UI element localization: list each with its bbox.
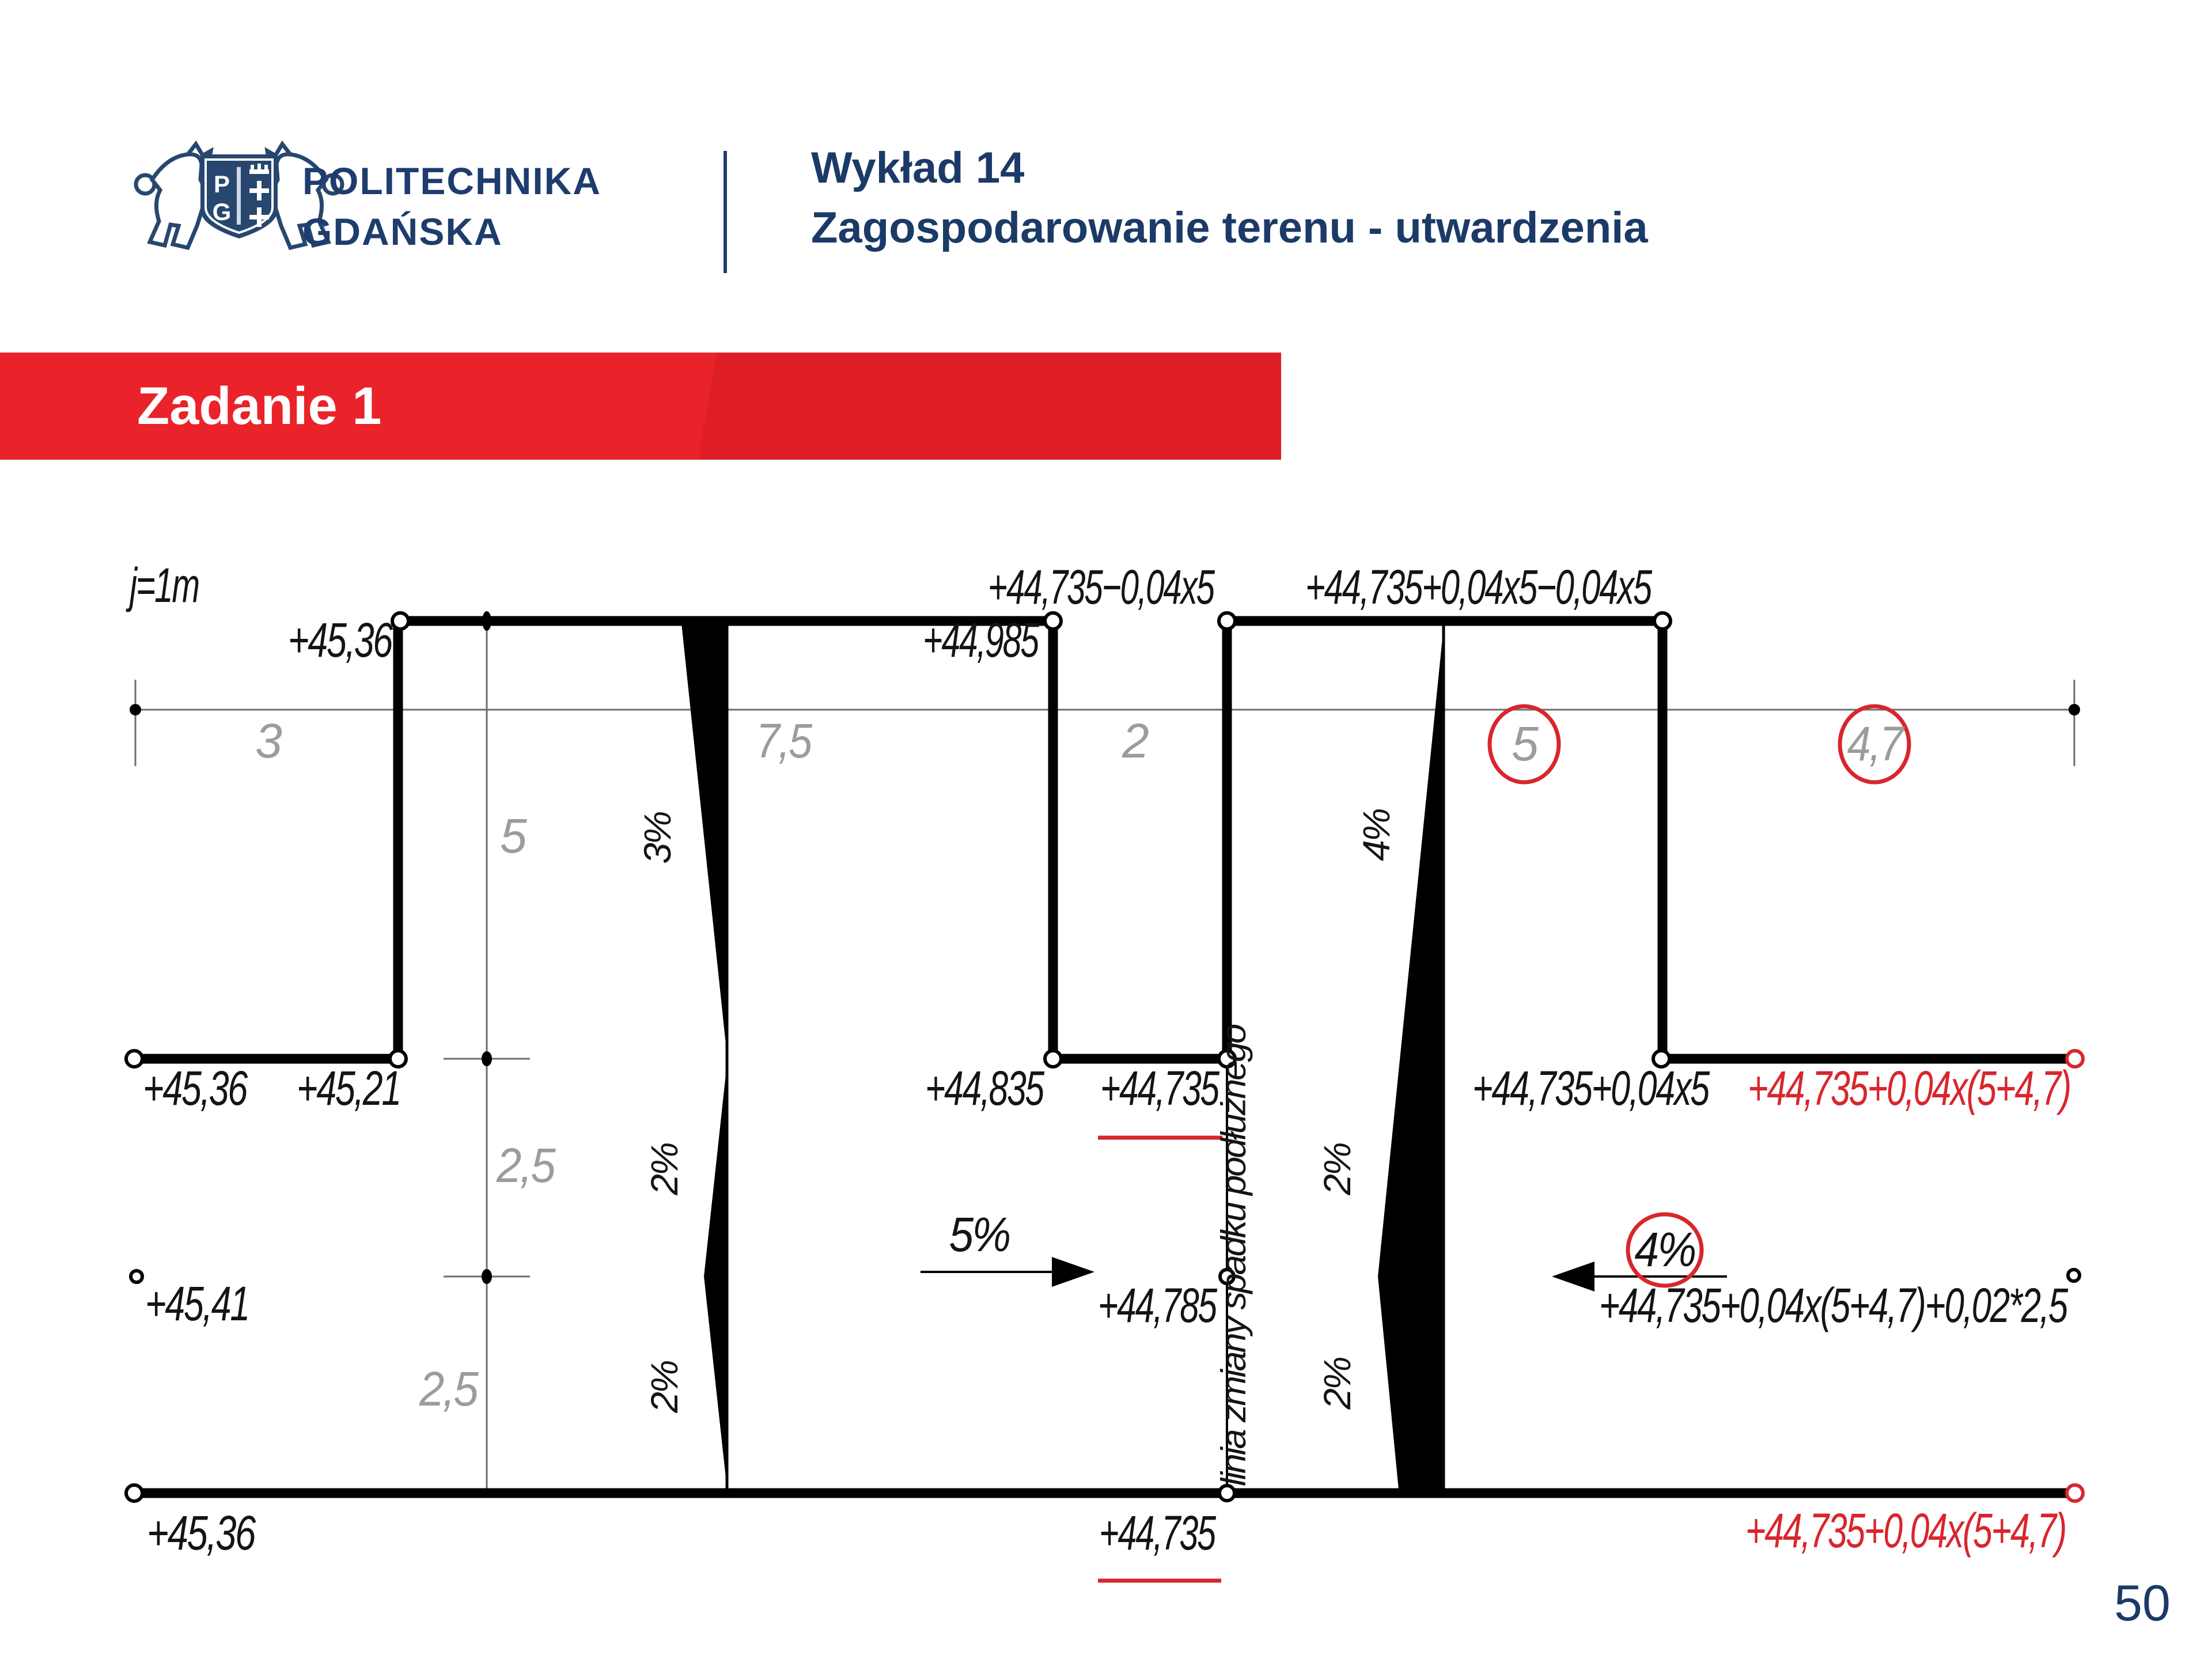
- elev-mid-formula-red: +44,735+0,04x(5+4,7): [1748, 1061, 2070, 1115]
- elev-mid-44-735: +44,735: [1100, 1061, 1219, 1115]
- formula-top-right: +44,735+0,04x5−0,04x5: [1305, 560, 1652, 614]
- wedge-2pct-left: [704, 1063, 727, 1488]
- dim-5-circled: 5: [1512, 717, 1539, 771]
- scale-note: j=1m: [126, 558, 199, 612]
- elev-top-left: +45,36: [288, 613, 393, 667]
- slope-3pct-label: 3%: [636, 812, 679, 864]
- site-plan-drawing: j=1m +45,36 +44,985 +44,735−0,04x5 +44,7…: [0, 0, 2212, 1659]
- dim-7-5: 7,5: [756, 714, 813, 768]
- dim-4-7-circled: 4,7: [1847, 717, 1906, 771]
- center-formula: +44,735+0,04x(5+4,7)+0,02*2,5: [1599, 1278, 2068, 1332]
- dim-v-5: 5: [500, 809, 527, 863]
- pct-4-label: 4%: [1635, 1222, 1695, 1277]
- dim-v-2-5-lower: 2,5: [419, 1362, 479, 1416]
- node-red-right-bottom: [2067, 1485, 2083, 1501]
- elev-45-41: +45,41: [145, 1277, 249, 1331]
- slide: P G POLITECHNIKA GDAŃSKA Wykład 14 Zagos…: [0, 0, 2212, 1659]
- pct-5-label: 5%: [949, 1207, 1010, 1262]
- elev-mid-45-21: +45,21: [297, 1061, 400, 1115]
- formula-top-left: +44,735−0,04x5: [988, 560, 1215, 614]
- wedge-4pct: [1378, 627, 1444, 1490]
- page-number: 50: [2114, 1574, 2171, 1633]
- elev-mid-44-835: +44,835: [925, 1061, 1044, 1115]
- wedge-3pct: [681, 623, 727, 1055]
- elev-bottom-red: +44,735+0,04x(5+4,7): [1745, 1503, 2066, 1558]
- slope-2pct-right-bot: 2%: [1316, 1358, 1358, 1410]
- elev-mid-45-36: +45,36: [143, 1061, 248, 1115]
- elev-bottom-left: +45,36: [147, 1506, 256, 1560]
- elev-top-mid: +44,985: [923, 613, 1039, 667]
- slope-2pct-left-mid: 2%: [643, 1143, 685, 1196]
- dim-v-2-5-upper: 2,5: [496, 1138, 556, 1192]
- dim-3: 3: [255, 714, 282, 768]
- elev-bottom-mid: +44,735: [1099, 1506, 1216, 1560]
- slope-change-line-label: linia zmiany spadku podłużnego: [1214, 1024, 1253, 1486]
- slope-4pct-label: 4%: [1355, 809, 1397, 861]
- dim-2: 2: [1122, 714, 1149, 768]
- slope-2pct-left-bot: 2%: [643, 1361, 685, 1414]
- elev-44-785: +44,785: [1098, 1278, 1217, 1332]
- arrow-right-head: [1052, 1257, 1094, 1287]
- arrow-left-head: [1552, 1262, 1594, 1291]
- slope-2pct-right-mid: 2%: [1316, 1143, 1358, 1196]
- elev-mid-formula-black: +44,735+0,04x5: [1472, 1061, 1710, 1115]
